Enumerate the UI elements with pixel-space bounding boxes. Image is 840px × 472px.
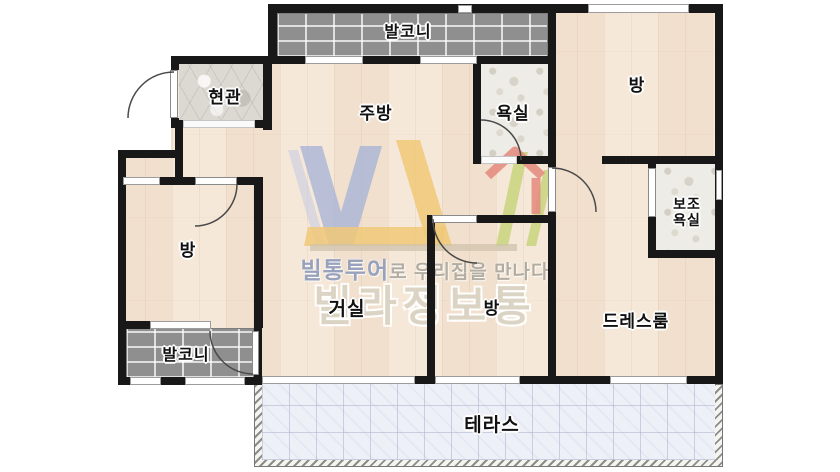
wall-segment (477, 215, 556, 223)
wall-segment (363, 56, 420, 64)
wall-segment (161, 377, 185, 385)
wall-segment (268, 4, 556, 13)
wall-segment (118, 377, 130, 385)
wall-segment (473, 156, 481, 164)
wall-segment (548, 212, 556, 384)
window-marker (185, 377, 245, 385)
exterior-mask (0, 384, 254, 472)
window-marker (305, 56, 363, 64)
wall-segment (160, 177, 195, 185)
wall-segment (118, 150, 126, 384)
window-marker (123, 177, 160, 185)
window-marker (435, 376, 520, 384)
kitchen-label: 주방 (359, 104, 392, 124)
entrance-passage (183, 120, 255, 128)
wall-segment (118, 150, 183, 158)
wall-segment (548, 4, 593, 13)
exterior-mask (0, 56, 171, 152)
balcony-bottom-label: 발코니 (162, 347, 209, 365)
wall-segment (648, 250, 723, 258)
wall-segment (473, 60, 481, 163)
balcony-top-label: 발코니 (384, 24, 431, 42)
floor-plan-canvas: 빌통투어로 우리집을 만나다 빌라정보통 (0, 0, 840, 472)
wall-segment (548, 4, 556, 64)
room-left-label: 방 (180, 241, 197, 261)
watermark-underline-bar (310, 244, 517, 251)
window-marker (150, 321, 211, 329)
room-top-right-label: 방 (629, 76, 646, 96)
entrance-door-leaf (170, 70, 178, 118)
aux-bathroom-door-leaf (648, 168, 656, 217)
wall-segment (427, 215, 435, 384)
wall-segment (602, 156, 715, 164)
window-marker (458, 5, 472, 13)
window-marker (130, 377, 161, 385)
wall-segment (268, 5, 277, 63)
window-marker (716, 170, 722, 200)
wall-segment (263, 56, 272, 130)
balcony-door-leaf (252, 331, 259, 375)
living-room-label: 거실 (329, 299, 366, 321)
wall-segment (548, 64, 556, 168)
bathroom-door-threshold (481, 156, 517, 164)
wall-segment (254, 177, 263, 328)
dressroom-label: 드레스룸 (603, 312, 670, 332)
exterior-mask (0, 0, 268, 56)
wall-segment (648, 156, 656, 168)
wall-segment (254, 376, 262, 384)
window-marker (420, 56, 477, 64)
exterior-mask (723, 0, 840, 472)
wall-segment (171, 56, 179, 70)
wall-segment (520, 376, 610, 384)
wall-segment (687, 376, 723, 384)
wall-segment (477, 56, 556, 64)
window-marker (262, 376, 415, 384)
window-marker (610, 376, 687, 384)
hall-door-leaf (548, 167, 556, 212)
room-middle-label: 방 (484, 299, 501, 319)
wall-segment (171, 56, 277, 64)
terrace-label: 테라스 (464, 415, 519, 437)
entrance-label: 현관 (208, 88, 241, 108)
room-middle-door-leaf (432, 215, 477, 223)
aux-bathroom-label: 보조 욕실 (673, 196, 701, 228)
room-left-door-leaf (195, 177, 237, 185)
bathroom-label: 욕실 (496, 104, 529, 124)
window-marker (588, 4, 689, 13)
wall-segment (118, 321, 150, 329)
exterior-mask (254, 467, 723, 472)
